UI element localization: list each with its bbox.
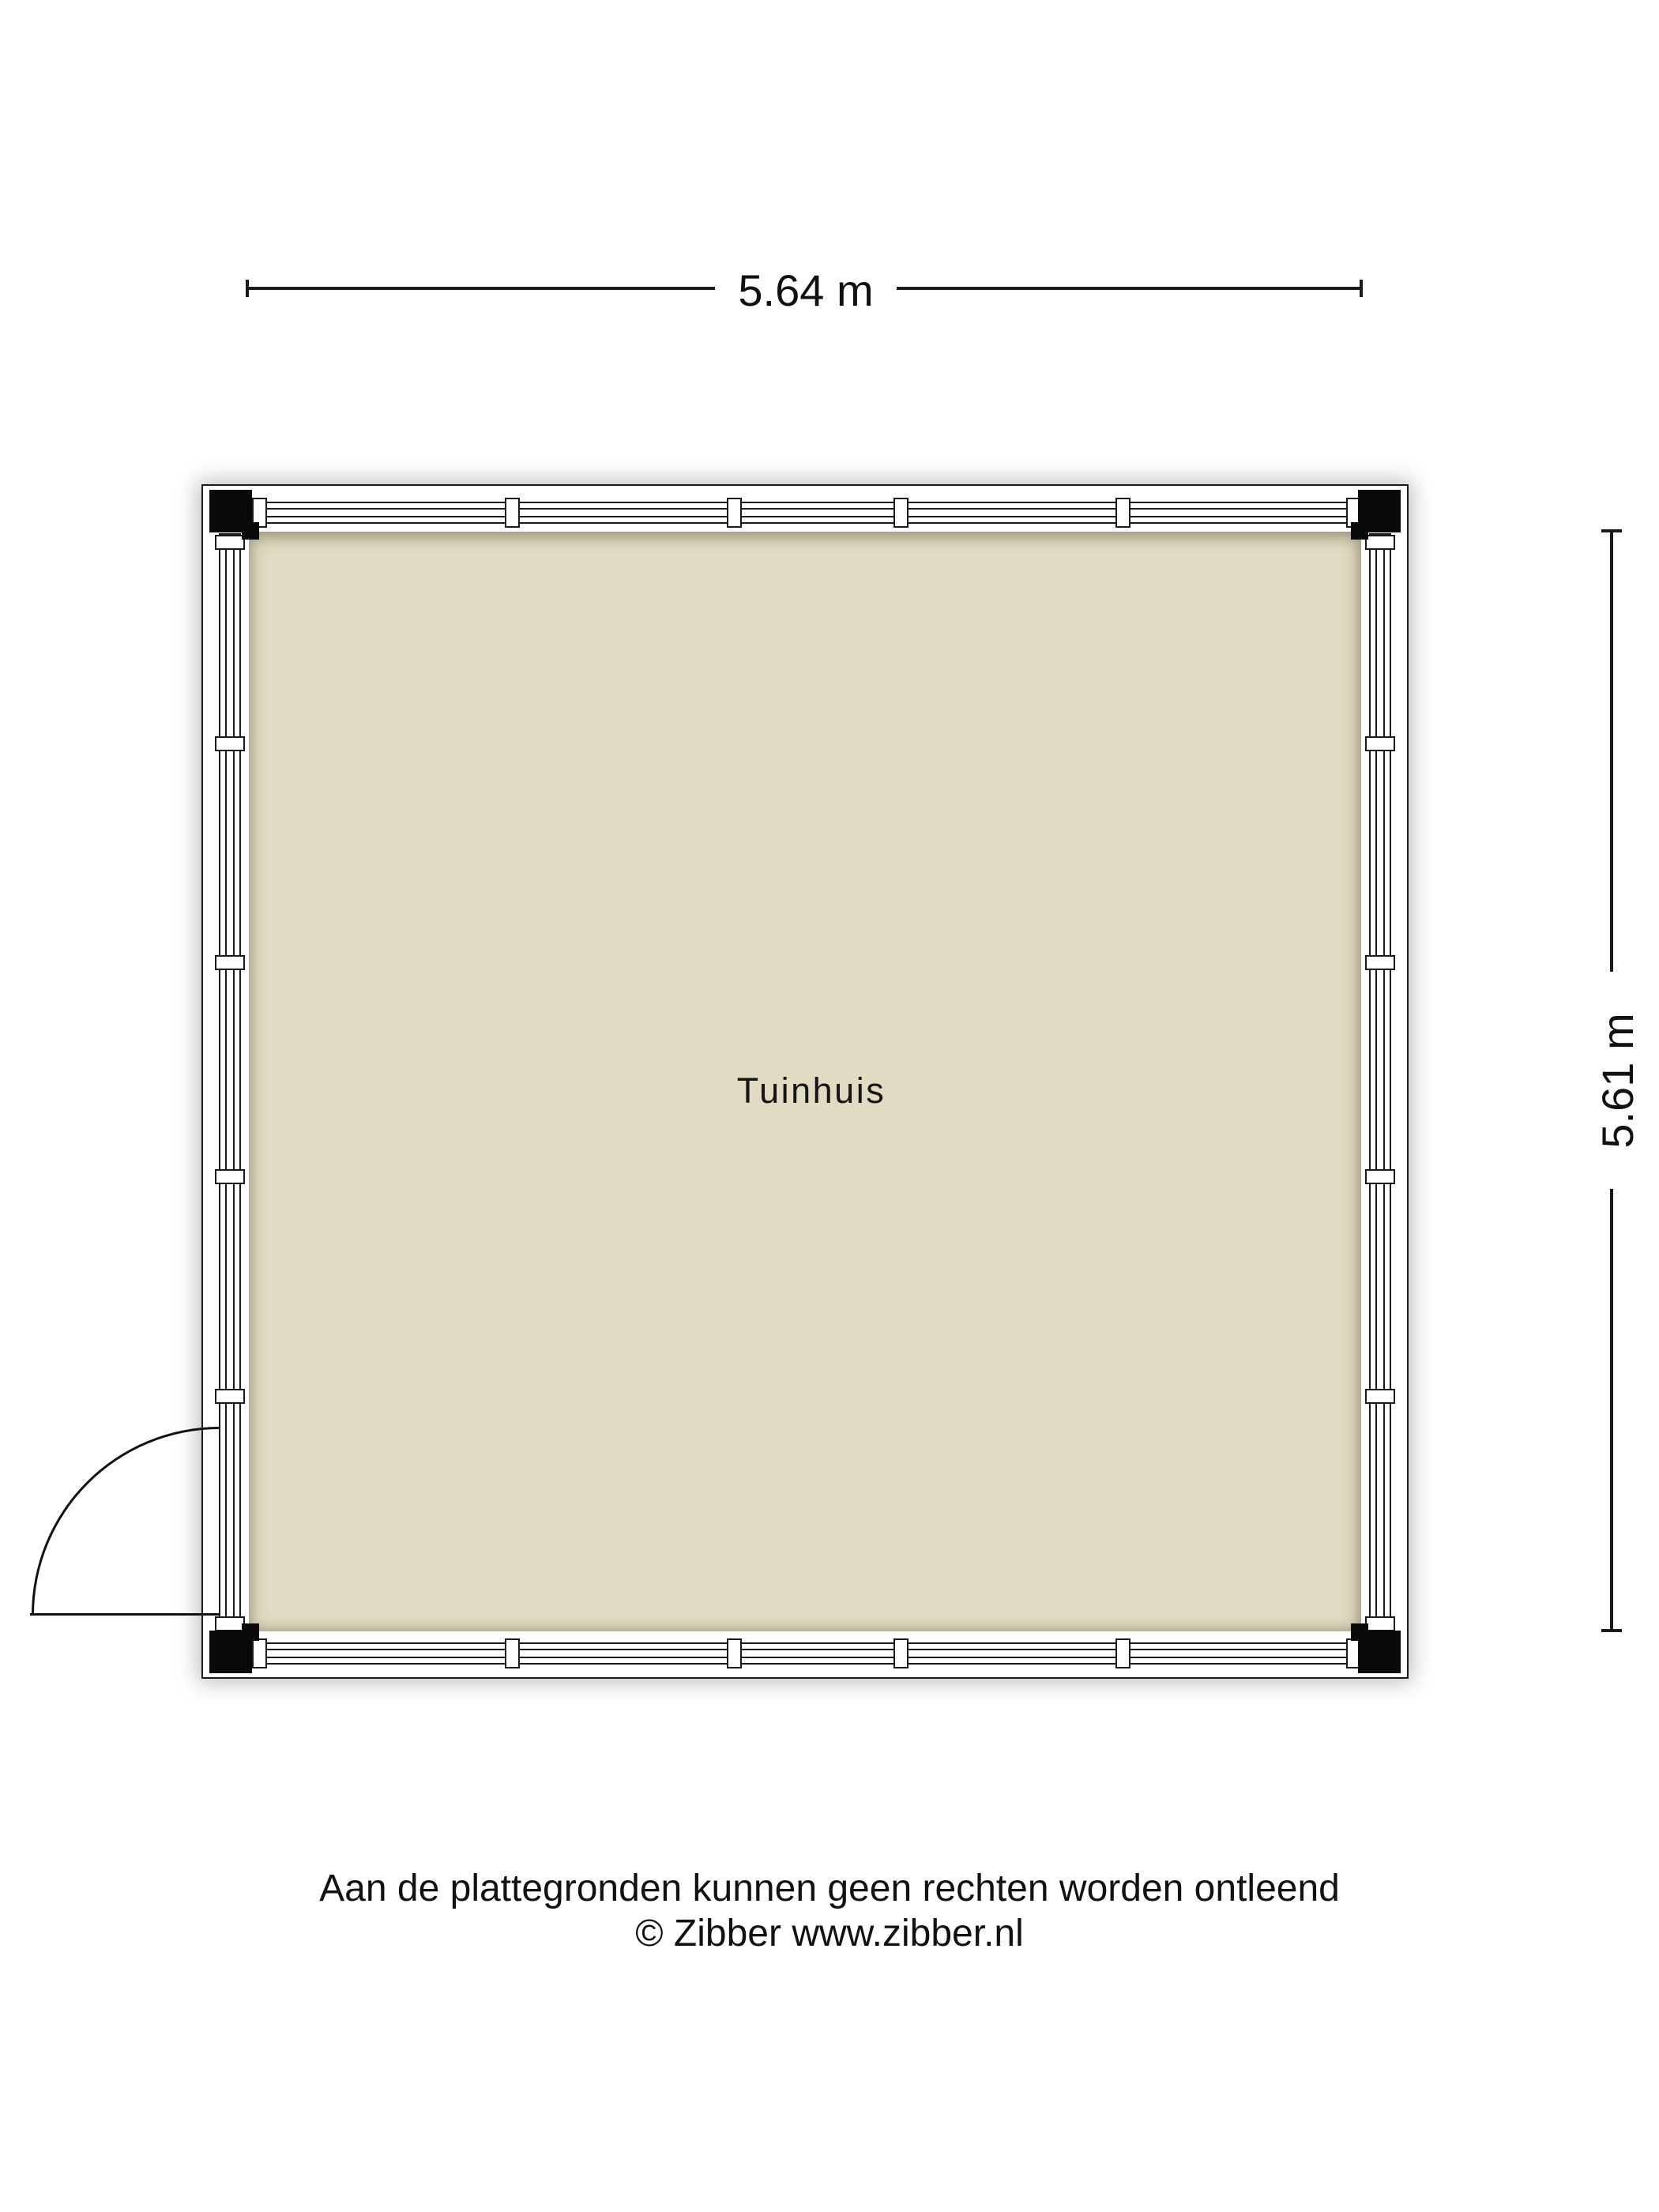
mullion [1115,1638,1130,1668]
mullion [1365,736,1395,751]
right-dimension-tick-bottom [1601,1629,1622,1632]
corner-post [1358,490,1401,532]
mullion [1365,1169,1395,1184]
wall-south-window [250,1642,1360,1665]
corner-post [1358,1631,1401,1673]
corner-post [209,1631,252,1673]
mullion [252,1638,267,1668]
top-dimension-tick-right [1360,280,1363,297]
right-dimension-label: 5.61 m [1592,982,1636,1179]
footer-credit: © Zibber www.zibber.nl [0,1911,1659,1956]
mullion [215,1389,245,1404]
wall-west-window [219,533,241,1630]
wall-north-window [250,502,1360,524]
top-dimension-label: 5.64 m [707,265,905,316]
mullion [215,1169,245,1184]
mullion [727,498,742,528]
mullion [1365,1616,1395,1631]
mullion [893,498,908,528]
mullion [215,955,245,970]
mullion [893,1638,908,1668]
wall-east-window [1369,533,1391,1630]
footer: Aan de plattegronden kunnen geen rechten… [0,1866,1659,1956]
top-dimension-line-right [897,287,1363,290]
corner-post [209,490,252,532]
footer-disclaimer: Aan de plattegronden kunnen geen rechten… [0,1866,1659,1911]
mullion [505,1638,520,1668]
mullion [505,498,520,528]
mullion [1115,498,1130,528]
door-swing-arc [32,1427,220,1615]
room-label: Tuinhuis [737,1070,886,1112]
mullion [215,736,245,751]
right-dimension-line-bottom [1610,1189,1613,1631]
mullion [1365,955,1395,970]
room-floor: Tuinhuis [249,532,1361,1631]
floorplan: Tuinhuis [201,484,1409,1679]
floorplan-page: 5.64 m 5.61 m Tuinhuis [0,0,1659,2212]
right-dimension-line-top [1610,531,1613,972]
door-leaf [30,1613,220,1616]
top-dimension-line-left [247,287,715,290]
mullion [727,1638,742,1668]
mullion [1365,1389,1395,1404]
mullion [215,1616,245,1631]
mullion [1365,535,1395,550]
mullion [215,535,245,550]
